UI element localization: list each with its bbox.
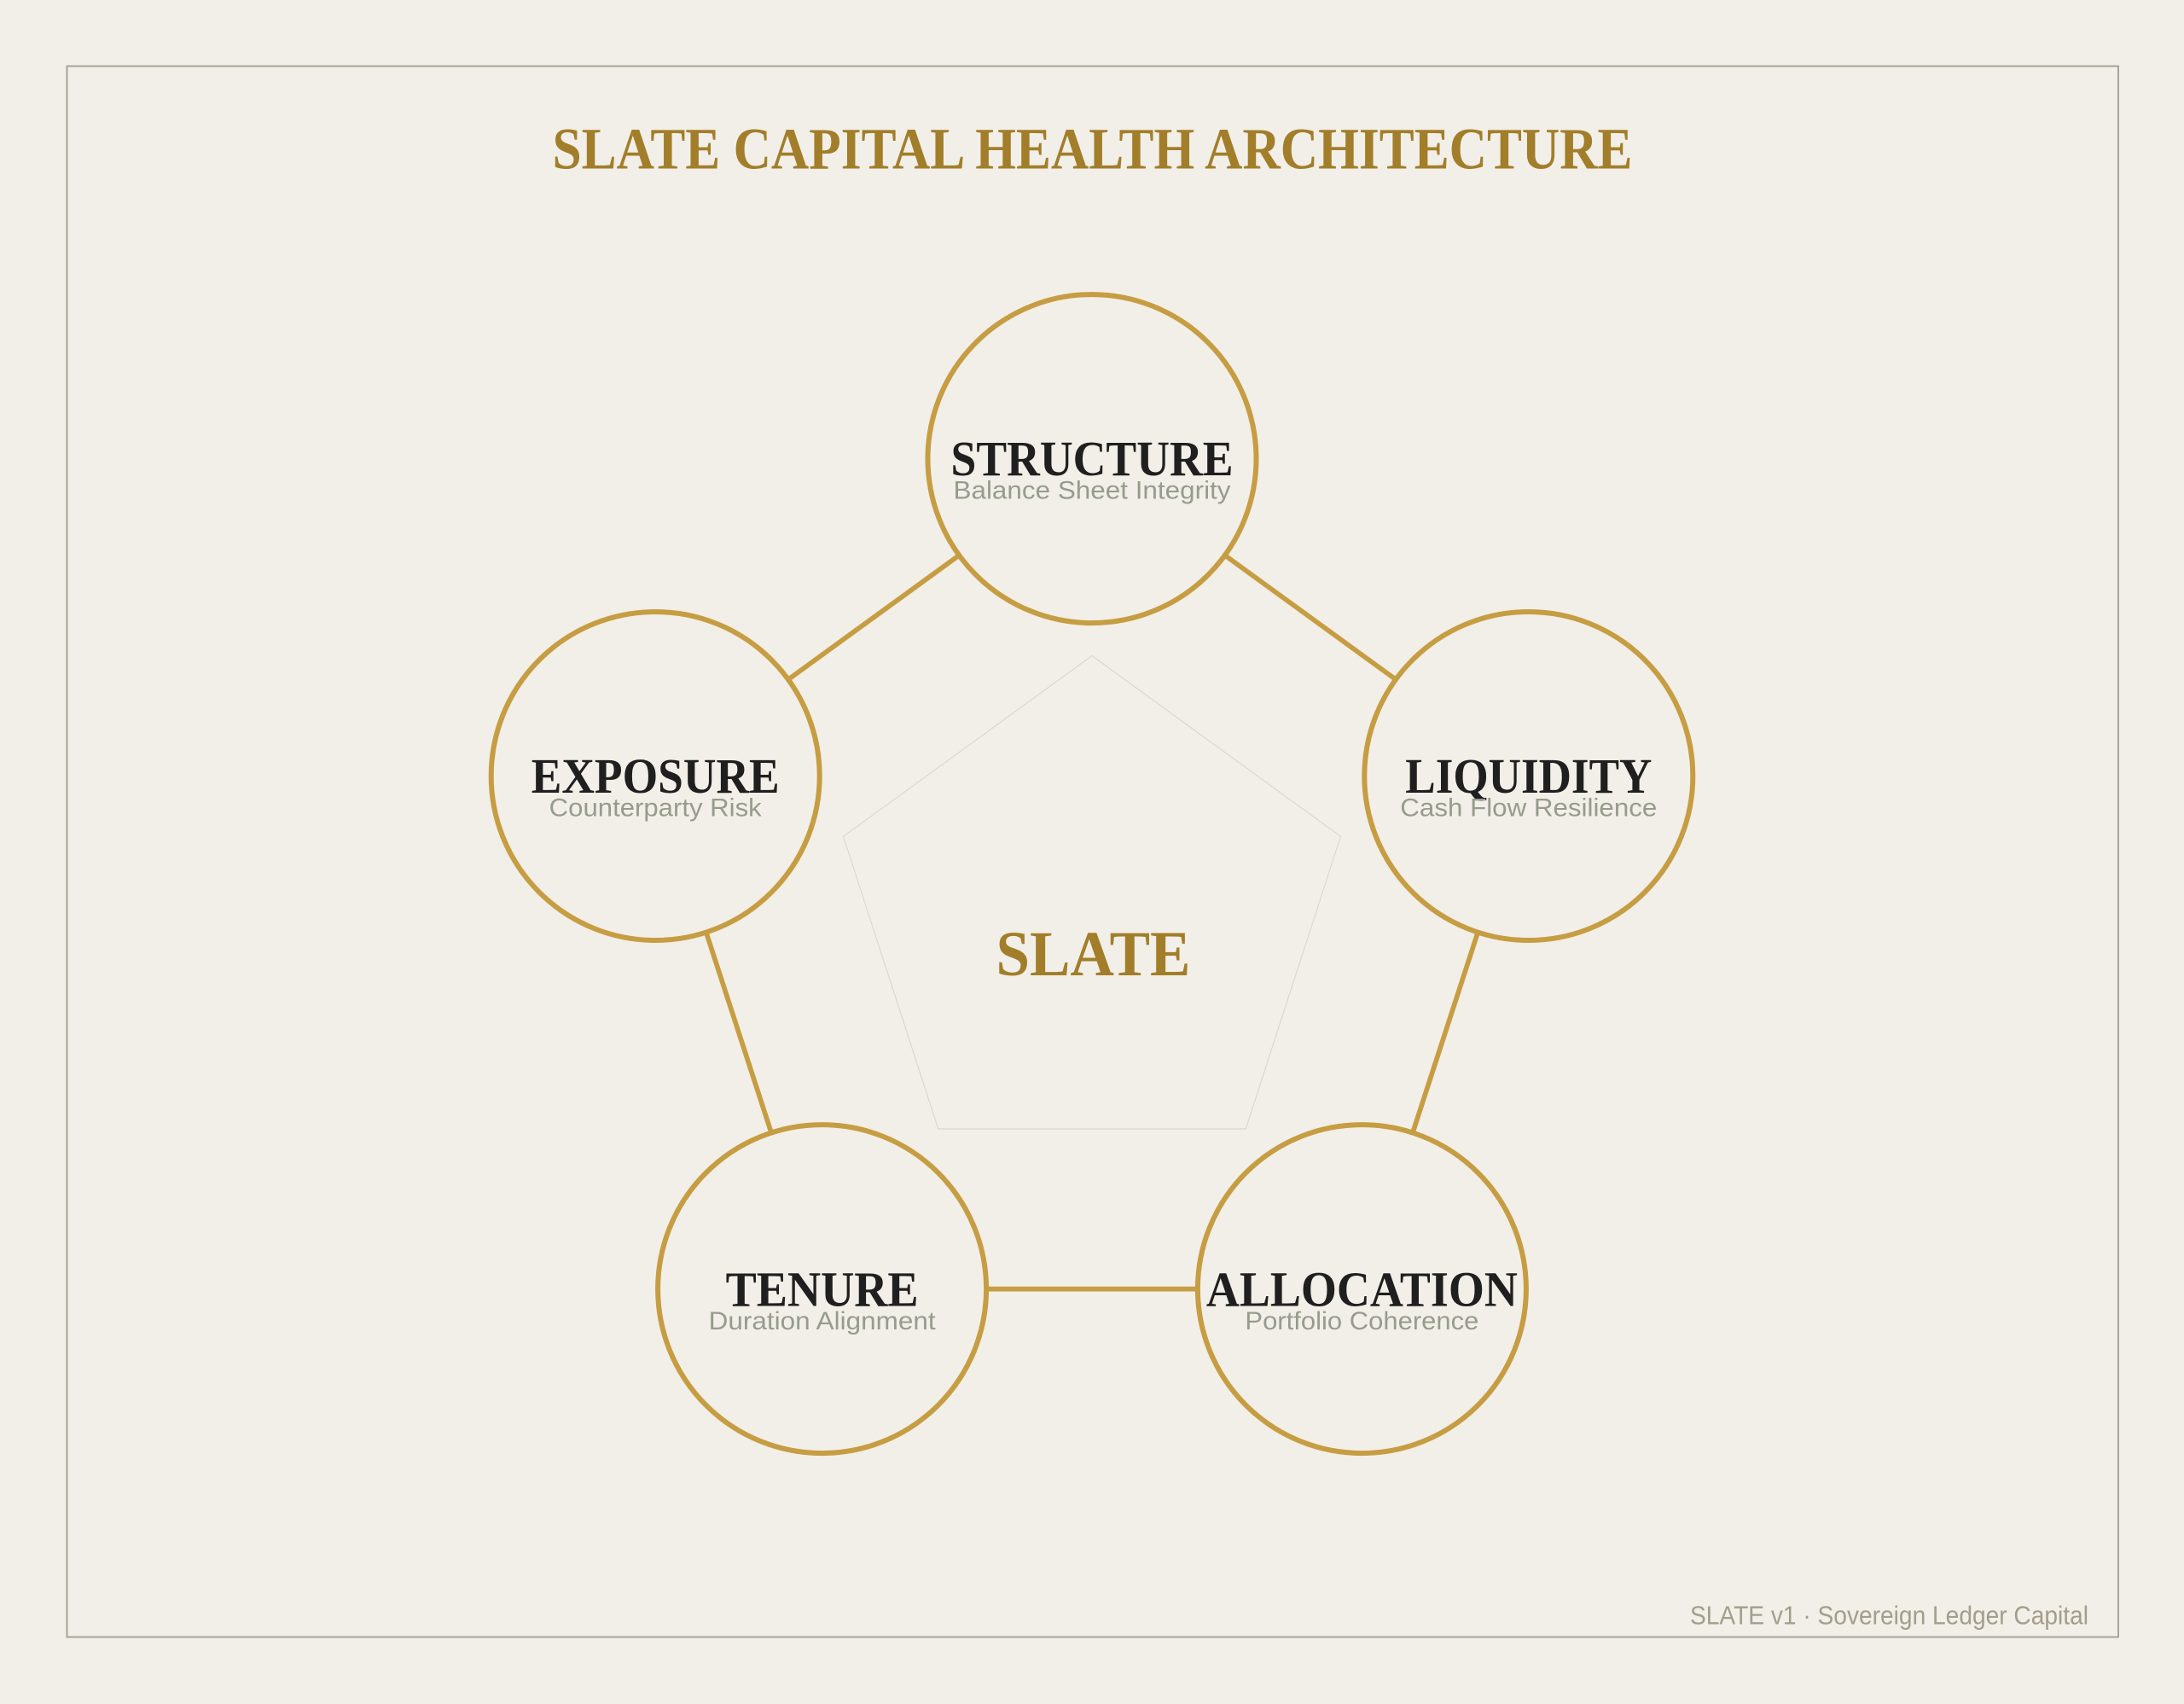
- svg-text:SLATE v1 · Sovereign Ledger Ca: SLATE v1 · Sovereign Ledger Capital: [1690, 1600, 2088, 1630]
- svg-text:Duration Alignment: Duration Alignment: [709, 1307, 936, 1335]
- svg-text:Counterparty Risk: Counterparty Risk: [549, 794, 762, 823]
- svg-text:Portfolio Coherence: Portfolio Coherence: [1245, 1307, 1478, 1335]
- svg-text:Balance Sheet Integrity: Balance Sheet Integrity: [954, 477, 1231, 505]
- svg-text:Cash Flow Resilience: Cash Flow Resilience: [1400, 794, 1657, 823]
- svg-text:SLATE: SLATE: [996, 919, 1191, 990]
- svg-text:SLATE CAPITAL HEALTH ARCHITECT: SLATE CAPITAL HEALTH ARCHITECTURE: [553, 117, 1633, 182]
